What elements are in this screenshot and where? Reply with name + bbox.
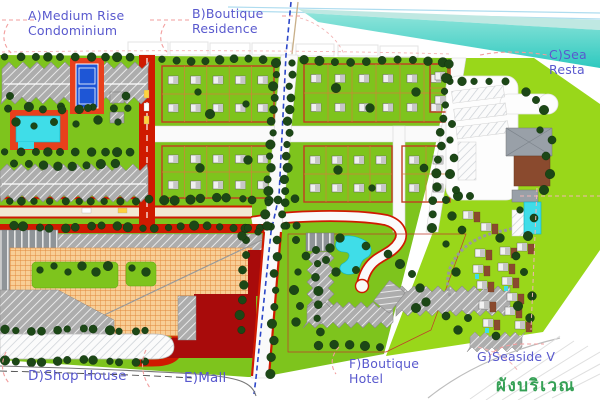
tree [345, 340, 354, 349]
tree [68, 162, 77, 171]
tree [293, 222, 301, 230]
label-zone-d: D)Shop House [28, 368, 127, 384]
house [213, 76, 223, 84]
tree [205, 109, 215, 119]
tree [266, 369, 276, 379]
tree [111, 159, 120, 168]
tree [271, 303, 279, 311]
tree [177, 223, 185, 231]
house [335, 75, 345, 83]
tree [346, 58, 354, 66]
tree [278, 211, 286, 219]
tree [115, 359, 123, 367]
tree [6, 92, 14, 100]
tree [203, 222, 211, 230]
tree [442, 102, 449, 109]
tree [422, 298, 431, 307]
tree [443, 241, 450, 248]
tree [56, 53, 64, 61]
tree [159, 56, 166, 63]
tree [31, 123, 38, 130]
tree [65, 269, 72, 276]
tree [269, 336, 278, 345]
tree [429, 197, 437, 205]
house [168, 181, 178, 189]
tree [76, 198, 83, 205]
tree [412, 88, 421, 97]
house [376, 184, 386, 192]
tree [411, 303, 421, 313]
tree [452, 268, 461, 277]
tree [362, 58, 370, 66]
label-zone-e: E)Mall [184, 370, 226, 386]
tree [332, 268, 341, 277]
tree [378, 56, 386, 64]
tree [235, 310, 245, 320]
tree [269, 105, 277, 113]
tree [492, 332, 500, 340]
house [383, 104, 393, 112]
house [409, 156, 419, 164]
tree [244, 224, 252, 232]
house [376, 156, 386, 164]
tree [12, 118, 21, 127]
tree [245, 55, 253, 63]
tree [37, 358, 46, 367]
tree [408, 270, 416, 278]
tree [539, 105, 549, 115]
house [310, 184, 320, 192]
tree [452, 186, 460, 194]
tree [1, 325, 10, 334]
house [258, 76, 268, 84]
site-plan: A)Medium Rise Condominium B)Boutique Res… [0, 0, 600, 400]
tree [259, 56, 267, 64]
tree [165, 224, 172, 231]
tree [416, 284, 425, 293]
tree [123, 222, 133, 232]
tree [187, 57, 195, 65]
tree [458, 77, 467, 86]
tree [266, 153, 273, 160]
house [213, 104, 223, 112]
tree [360, 341, 370, 351]
house [332, 184, 342, 192]
label-zone-b: B)Boutique Residence [192, 6, 264, 37]
tree [284, 141, 291, 148]
tree [432, 183, 441, 192]
vehicle [82, 208, 91, 213]
tree [523, 231, 533, 241]
tree [124, 105, 131, 112]
tree [432, 169, 442, 179]
tree [326, 244, 335, 253]
house [213, 155, 223, 163]
tree [273, 252, 282, 261]
tree [115, 119, 122, 126]
tree [273, 71, 280, 78]
tree [296, 302, 304, 310]
tree [101, 148, 109, 156]
tree [17, 148, 25, 156]
tree [96, 159, 106, 169]
tree [441, 73, 451, 83]
tree [532, 96, 540, 104]
tree [87, 53, 96, 62]
tree [281, 199, 289, 207]
tree [1, 148, 8, 155]
tree [471, 78, 478, 85]
tree [43, 147, 52, 156]
tree [314, 341, 323, 350]
tree [526, 314, 535, 323]
tree [83, 162, 91, 170]
house [191, 104, 201, 112]
tree [173, 57, 181, 65]
tree [113, 222, 122, 231]
tree [289, 71, 297, 79]
tree [394, 56, 402, 64]
tree [281, 223, 288, 230]
tree [89, 356, 98, 365]
tree [263, 222, 272, 231]
tree [496, 234, 505, 243]
tree [46, 198, 53, 205]
tree [260, 210, 270, 220]
tree [80, 325, 88, 333]
tree [409, 56, 417, 64]
tree [537, 127, 544, 134]
tree [429, 211, 437, 219]
tree [87, 148, 96, 157]
tree [64, 326, 71, 333]
tree [545, 169, 555, 179]
tree [126, 53, 134, 61]
tree [264, 186, 274, 196]
tree [295, 269, 302, 276]
zone-d-e-commercial [0, 230, 266, 359]
vehicle [118, 208, 127, 213]
label-zone-g: G)Seaside V [477, 349, 555, 364]
tree [238, 232, 247, 241]
tree [331, 83, 341, 93]
tree [105, 325, 115, 335]
tree [312, 246, 320, 254]
tree [314, 315, 321, 322]
tree [17, 53, 25, 61]
tree [286, 129, 294, 137]
tree [142, 327, 149, 334]
vehicle [144, 103, 149, 111]
tree [244, 156, 253, 165]
house [258, 104, 268, 112]
tree [112, 52, 122, 62]
tree [292, 236, 300, 244]
tree [270, 269, 278, 277]
vehicle [144, 116, 149, 124]
house [168, 155, 178, 163]
tree [132, 328, 140, 336]
tree [117, 198, 125, 206]
tree [10, 160, 18, 168]
tree [0, 356, 10, 366]
house [383, 75, 393, 83]
house [311, 75, 321, 83]
tree [315, 56, 325, 66]
tree [37, 327, 45, 335]
tree [282, 152, 290, 160]
beach-pool-deck [512, 210, 524, 236]
tree [300, 55, 309, 64]
tree [140, 225, 147, 232]
tree [71, 223, 79, 231]
tree [27, 358, 36, 367]
tree [542, 152, 550, 160]
tree [280, 175, 289, 184]
tree [27, 327, 35, 335]
tree [196, 164, 205, 173]
tree [281, 187, 289, 195]
tree [230, 55, 238, 63]
tree [267, 117, 275, 125]
tree [442, 312, 450, 320]
tree [50, 118, 58, 126]
tree [84, 104, 92, 112]
tree [126, 148, 134, 156]
tree [122, 92, 130, 100]
tree [54, 326, 62, 334]
tree [159, 195, 169, 205]
tree [4, 105, 12, 113]
house [407, 75, 417, 83]
tree [442, 196, 450, 204]
tree [18, 221, 28, 231]
tree [437, 142, 445, 150]
tree [311, 273, 319, 281]
tree [271, 58, 281, 68]
tree [441, 88, 448, 95]
tree [242, 251, 250, 259]
tree [43, 52, 52, 61]
tree [539, 185, 549, 195]
tree [71, 148, 79, 156]
tree [272, 287, 279, 294]
tree [186, 195, 196, 205]
label-zone-f: F)Boutique Hotel [349, 356, 419, 387]
tree [243, 101, 250, 108]
tree [32, 53, 40, 61]
tree [132, 358, 140, 366]
tree [366, 104, 375, 113]
tree [513, 301, 523, 311]
tree [222, 193, 231, 202]
tree [62, 198, 70, 206]
tree [314, 286, 324, 296]
tree [116, 328, 123, 335]
house [354, 184, 364, 192]
house [213, 181, 223, 189]
house [310, 156, 320, 164]
tree [292, 318, 301, 327]
house [431, 104, 441, 112]
tree [64, 356, 72, 364]
tree [287, 94, 295, 102]
tree [32, 148, 40, 156]
tree [195, 89, 202, 96]
tree [45, 224, 53, 232]
tree [268, 81, 278, 91]
house [191, 76, 201, 84]
tree [1, 53, 8, 60]
tree [270, 129, 277, 136]
tree [12, 327, 19, 334]
tree [291, 195, 299, 203]
tree [61, 224, 70, 233]
tree [216, 223, 223, 230]
tree [369, 185, 376, 192]
tree [17, 197, 25, 205]
tree [101, 53, 109, 61]
tree [248, 196, 256, 204]
house [409, 184, 419, 192]
tree [264, 176, 272, 184]
tree [424, 57, 433, 66]
tree [92, 268, 101, 277]
tree [440, 115, 448, 123]
thai-caption: ผังบริเวณ [496, 372, 576, 399]
tree [331, 58, 339, 66]
tree [384, 250, 392, 258]
tree [129, 265, 136, 272]
tree [212, 193, 221, 202]
tree [89, 325, 97, 333]
tree [80, 355, 88, 363]
tree [36, 224, 44, 232]
tree [56, 148, 64, 156]
tree [132, 198, 140, 206]
house [332, 156, 342, 164]
tree [502, 78, 510, 86]
tree [302, 252, 310, 260]
house [359, 75, 369, 83]
house [191, 181, 201, 189]
tree [267, 319, 277, 329]
tree [271, 94, 279, 102]
tree [6, 198, 13, 205]
tree [71, 53, 79, 61]
tree [107, 358, 114, 365]
tree [427, 223, 437, 233]
tree [436, 128, 444, 136]
house [168, 104, 178, 112]
tree [267, 353, 276, 362]
house [168, 76, 178, 84]
tree [98, 222, 106, 230]
tree [24, 102, 34, 112]
tree [548, 136, 556, 144]
tree [215, 55, 224, 64]
tree [445, 169, 455, 179]
tree [58, 106, 66, 114]
tree [289, 60, 296, 67]
tree [31, 198, 38, 205]
tree [112, 147, 122, 157]
tree [517, 207, 524, 214]
tree [240, 195, 247, 202]
tree [362, 242, 370, 250]
tree [486, 78, 493, 85]
tree [239, 281, 248, 290]
tree [53, 357, 62, 366]
tree [448, 120, 456, 128]
tree [25, 160, 33, 168]
tree [336, 234, 345, 243]
tree [51, 263, 58, 270]
tree [445, 60, 454, 69]
tree [145, 195, 153, 203]
tree [274, 196, 282, 204]
tree [10, 221, 19, 230]
shophouse-row [0, 334, 174, 359]
tree [447, 137, 454, 144]
tree [395, 259, 405, 269]
tree [103, 261, 113, 271]
house [354, 156, 364, 164]
tree [454, 326, 463, 335]
tree [150, 224, 158, 232]
house [235, 76, 245, 84]
tree [512, 252, 520, 260]
tree [530, 214, 538, 222]
tree [434, 156, 442, 164]
tree [189, 221, 199, 231]
mall-block [194, 294, 256, 358]
tree [289, 285, 299, 295]
tree [448, 212, 457, 221]
tree [230, 224, 238, 232]
tree [238, 326, 246, 334]
tree [464, 314, 472, 322]
tree [466, 192, 474, 200]
tree [283, 117, 292, 126]
house [235, 181, 245, 189]
tree [520, 268, 528, 276]
label-zone-c: C)Sea Resta [549, 47, 587, 78]
house [311, 104, 321, 112]
tree [522, 88, 531, 97]
tree [450, 154, 458, 162]
tree [170, 196, 180, 206]
tree [238, 266, 246, 274]
tree [94, 116, 103, 125]
tree [238, 296, 246, 304]
tree [458, 226, 466, 234]
tree [101, 198, 108, 205]
tree [75, 105, 84, 114]
tree [255, 229, 262, 236]
tree [142, 268, 151, 277]
tree [110, 105, 118, 113]
tree [314, 260, 321, 267]
site-plan-drawing [0, 0, 600, 400]
tree [87, 198, 95, 206]
zone-c-restaurant [446, 76, 558, 202]
tree [314, 301, 322, 309]
tree [334, 166, 343, 175]
tree [88, 222, 96, 230]
tree [273, 236, 281, 244]
tree [73, 121, 80, 128]
